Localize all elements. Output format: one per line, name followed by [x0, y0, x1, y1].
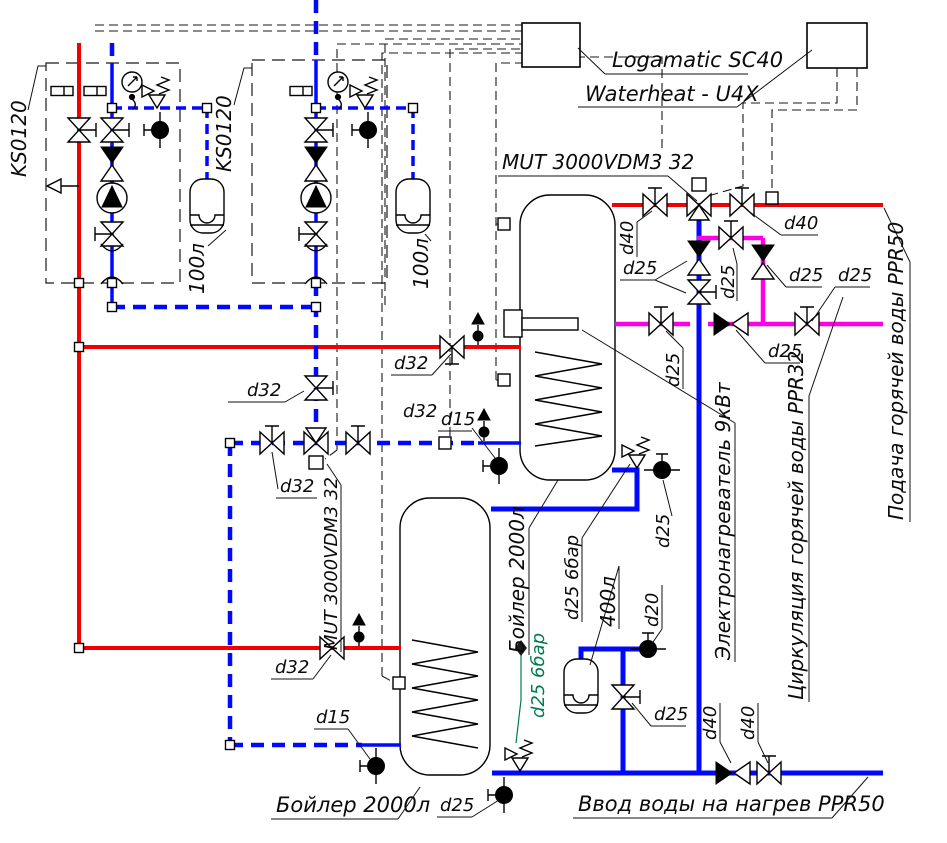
label-d25-heater-line: d25 [623, 258, 657, 279]
connector [226, 439, 235, 448]
label-d25-lower-drain: d25 [440, 795, 474, 816]
connector [75, 279, 84, 288]
electric-heater-body [504, 310, 522, 337]
label-d32-supply-mid: d32 [394, 353, 428, 374]
connector [312, 303, 321, 312]
label-d25-circ-right: d25 [838, 265, 872, 286]
connector [75, 644, 84, 653]
label-mut-lower: MUT 3000VDM3 32 [321, 477, 342, 650]
heating-schematic: Logamatic SC40 Waterheat - U4X MUT 3000V… [0, 0, 947, 843]
connector [75, 343, 84, 352]
connector [108, 104, 117, 113]
label-boiler-lower: Бойлер 2000л [276, 793, 430, 817]
sensor-upper-tank-2 [498, 374, 510, 386]
label-d32-loop-right: d32 [403, 401, 437, 422]
controller-logamatic-box [522, 23, 580, 67]
label-d25-circ-upper-check: d25 [789, 265, 823, 286]
sensor-supply-line [766, 192, 778, 204]
connector [312, 279, 321, 288]
label-d40-left: d40 [617, 221, 638, 255]
label-100l-2: 100л [409, 238, 433, 289]
label-boiler-upper: Бойлер 2000л [505, 506, 529, 653]
boiler-lower-2000l [400, 498, 490, 775]
label-d25-upper-drain: d25 [653, 514, 674, 548]
label-safety-lower: d25 6бар [528, 633, 549, 718]
label-d25-exp-valve: d25 [654, 704, 688, 725]
label-safety-upper: d25 6бар [562, 535, 583, 620]
label-waterheat: Waterheat - U4X [585, 82, 759, 106]
label-d40-inlet-valve: d40 [738, 706, 759, 740]
label-ks0120-2: KS0120 [212, 95, 236, 172]
sensor-upper-tank-1 [498, 218, 510, 230]
label-100l-1: 100л [185, 243, 209, 294]
label-cold-inlet: Ввод воды на нагрев PPR50 [578, 792, 885, 816]
sensor-lower-tank [393, 677, 405, 689]
label-d32-supply-low: d32 [275, 657, 309, 678]
label-circulation: Циркуляция горячей воды PPR32 [784, 351, 808, 700]
connector [409, 104, 418, 113]
label-d25-circ-left: d25 [663, 353, 684, 387]
connector [108, 279, 117, 288]
expansion-tank-100l-2 [396, 179, 430, 233]
label-d40-right: d40 [784, 213, 818, 234]
label-400l: 400л [596, 576, 620, 627]
connector [226, 741, 235, 750]
thermometer-red-module1 [51, 87, 73, 96]
connector [108, 303, 117, 312]
label-mut-top: MUT 3000VDM3 32 [502, 150, 694, 174]
connector [312, 104, 321, 113]
label-d40-inlet-check: d40 [700, 706, 721, 740]
thermometer-module2 [290, 87, 312, 96]
label-d32-riser: d32 [247, 380, 281, 401]
pump-module2 [301, 183, 331, 213]
electric-heater-element [522, 318, 578, 330]
expansion-tank-400l [564, 659, 598, 713]
thermometer-blue-module1 [84, 87, 106, 96]
boiler-upper-2000l [504, 195, 615, 480]
controller-waterheat-box [807, 23, 867, 68]
label-logamatic: Logamatic SC40 [612, 48, 783, 72]
label-d20: d20 [642, 593, 663, 627]
label-electric-heater: Электронагреватель 9кВт [711, 381, 735, 661]
pump-module1 [97, 183, 127, 213]
label-d25-circ-upper-valve: d25 [718, 265, 739, 299]
label-d15-feed: d15 [316, 707, 350, 728]
label-d32-loop-left: d32 [280, 476, 314, 497]
expansion-tank-100l-1 [190, 179, 224, 233]
label-hot-supply: Подача горячей воды PPR50 [884, 222, 908, 520]
sensor-feed-line-d15 [439, 437, 451, 449]
label-d15-sensor: d15 [441, 409, 475, 430]
label-ks0120-1: KS0120 [7, 100, 31, 177]
connector [203, 104, 212, 113]
